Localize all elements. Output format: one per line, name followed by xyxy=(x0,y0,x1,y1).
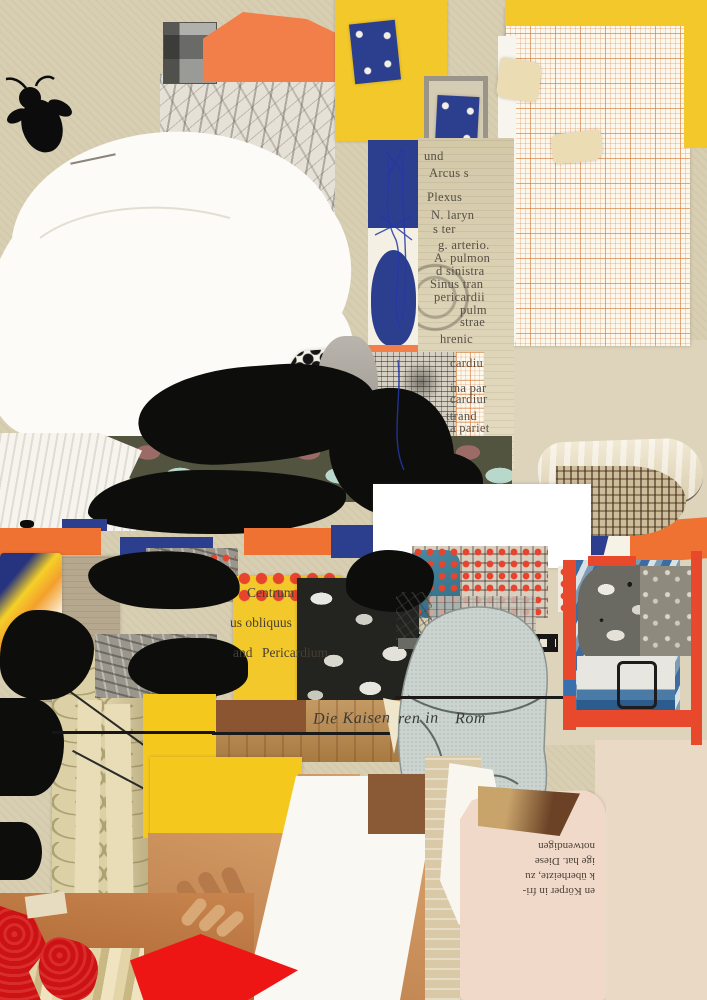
yellow-band-right xyxy=(684,0,707,148)
orange-stripe-left xyxy=(0,528,101,555)
bee-silhouette-icon xyxy=(6,74,78,162)
black-rule-left xyxy=(52,731,215,734)
blue-dotted-scrap-top xyxy=(349,20,401,84)
orange-vertical-strip xyxy=(691,551,702,745)
orange-stripe-2 xyxy=(244,528,333,555)
blue-chip xyxy=(564,680,576,696)
collage-artwork: en Körper in fri-k überheizte, zuige hat… xyxy=(0,0,707,1000)
rotated-text-line: ige hat. Diese xyxy=(497,853,595,868)
yellow-band-top xyxy=(505,0,707,26)
tape-scrap-1 xyxy=(495,57,542,102)
small-black-mark xyxy=(20,520,34,528)
ink-blob xyxy=(128,638,248,698)
frame-bar-bottom xyxy=(563,710,691,727)
frame-bar-left xyxy=(563,560,576,730)
tape-scrap-2 xyxy=(551,129,604,164)
ink-blob xyxy=(0,822,42,880)
rotated-german-text: en Körper in fri-k überheizte, zuige hat… xyxy=(497,840,595,898)
rotated-text-line: en Körper in fri- xyxy=(497,883,595,898)
fabric-scrap-right xyxy=(640,566,692,656)
frame-tab-top xyxy=(588,556,636,566)
ink-blob xyxy=(88,470,346,534)
graph-paper-sheet xyxy=(505,8,690,346)
orange-polygon-cutout xyxy=(203,12,336,82)
yellow-block-b xyxy=(150,757,302,837)
black-rule-fist xyxy=(395,696,563,699)
blue-strip-top xyxy=(368,140,418,230)
wood-dark-patch xyxy=(210,700,306,732)
framed-inner-photo xyxy=(577,656,675,714)
rotated-text-line: k überheizte, zu xyxy=(497,868,595,883)
rotated-text-line: notwendigen xyxy=(497,839,595,854)
paper-tint-bottom-right xyxy=(595,740,707,1000)
rounded-square-outline xyxy=(617,661,657,709)
blue-strip-circle xyxy=(371,250,416,346)
